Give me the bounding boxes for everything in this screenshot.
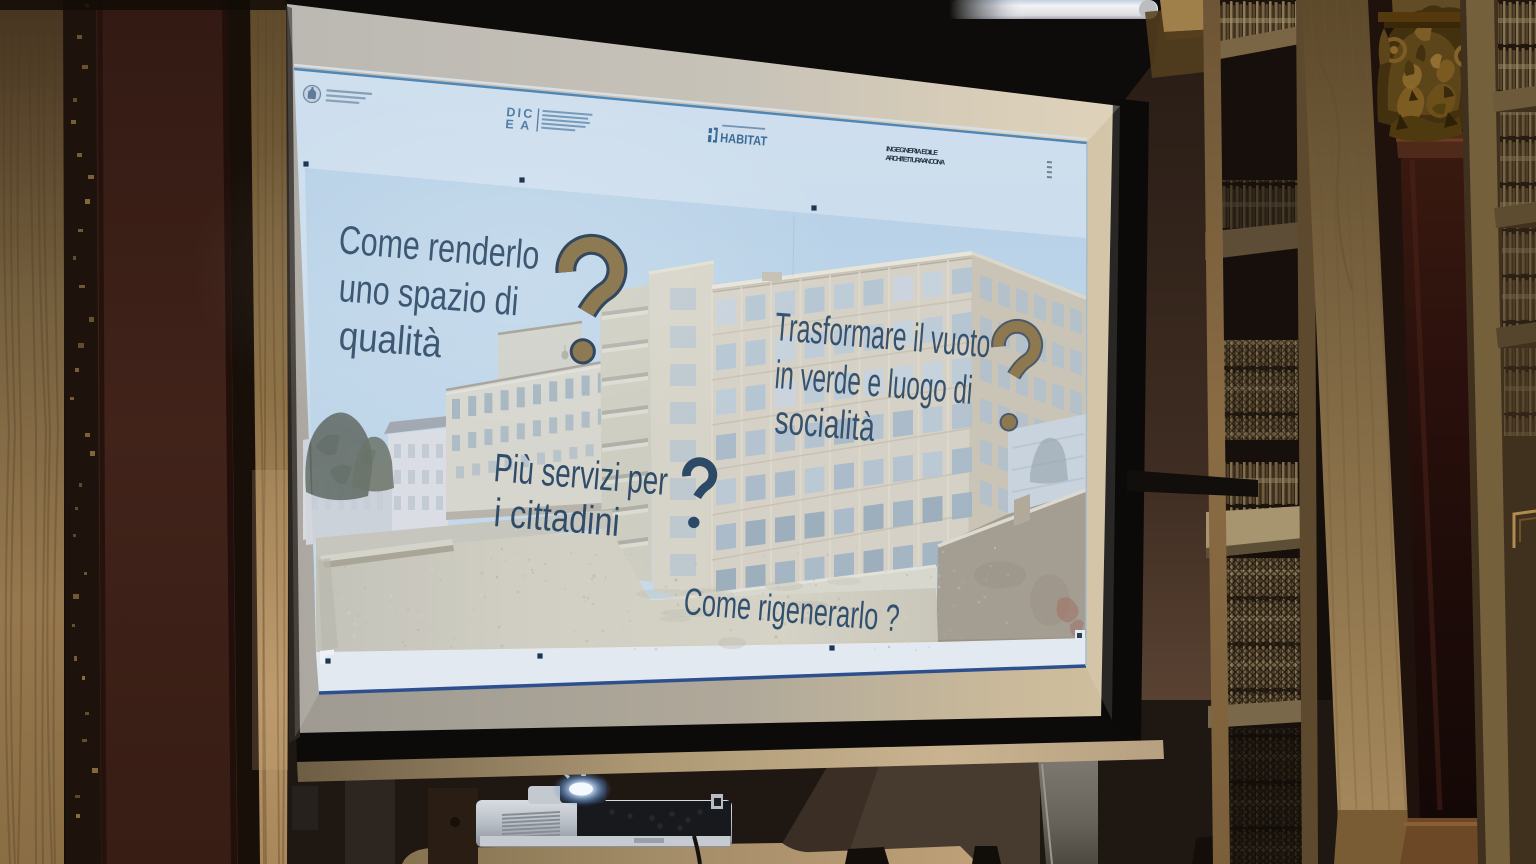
svg-text:qualità: qualità: [337, 314, 444, 366]
svg-text:socialità: socialità: [773, 398, 877, 450]
